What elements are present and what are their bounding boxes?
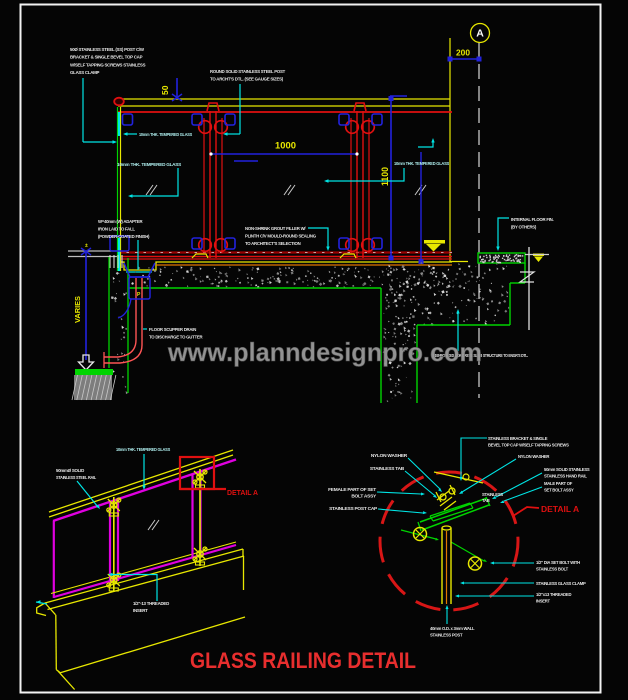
svg-text:TO ARCHITECT'S SELECTION: TO ARCHITECT'S SELECTION: [245, 241, 301, 246]
svg-text:GLASS RAILING DETAIL: GLASS RAILING DETAIL: [190, 648, 416, 673]
svg-text:MALE PART OF: MALE PART OF: [544, 481, 573, 486]
svg-text:STAINLESS BOLT: STAINLESS BOLT: [536, 567, 569, 572]
svg-text:STAINLESS BRACKET & SINGLE: STAINLESS BRACKET & SINGLE: [488, 436, 548, 441]
svg-text:VARIES: VARIES: [73, 296, 82, 323]
svg-text:1000: 1000: [275, 141, 296, 152]
svg-text:SET BOLT ASSY: SET BOLT ASSY: [544, 488, 574, 493]
svg-text:GLASS CLAMP: GLASS CLAMP: [70, 70, 100, 75]
svg-text:(POWDER-COATED FINISH): (POWDER-COATED FINISH): [98, 234, 150, 239]
svg-text:FLOOR SCUPPER DRAIN: FLOOR SCUPPER DRAIN: [149, 327, 196, 332]
svg-text:STAINLESS POST: STAINLESS POST: [430, 633, 463, 638]
svg-text:ROUND SOLID STAINLESS STEEL PO: ROUND SOLID STAINLESS STEEL POST: [210, 69, 286, 74]
svg-text:BEVEL TOP CAP W/SELF TAPPING S: BEVEL TOP CAP W/SELF TAPPING SCREWS: [488, 443, 569, 448]
svg-text:1/2" DIA SET BOLT WITH: 1/2" DIA SET BOLT WITH: [536, 560, 580, 565]
svg-text:1/2"-13 THREADED: 1/2"-13 THREADED: [133, 601, 169, 606]
svg-text:INTERNAL FLOOR FIN.: INTERNAL FLOOR FIN.: [511, 217, 553, 222]
svg-text:STAINLESS POST CAP: STAINLESS POST CAP: [329, 506, 378, 512]
svg-text:STAINLESS GLASS CLAMP: STAINLESS GLASS CLAMP: [536, 581, 586, 586]
svg-text:IRON LAID TO FALL: IRON LAID TO FALL: [98, 227, 135, 232]
svg-text:10mm THK. TEMPERED GLASS: 10mm THK. TEMPERED GLASS: [139, 132, 192, 137]
svg-text:10mm THK. TEMPERED GLASS: 10mm THK. TEMPERED GLASS: [116, 447, 170, 452]
svg-text:INSERT: INSERT: [536, 599, 551, 604]
svg-text:DETAIL A: DETAIL A: [227, 490, 258, 497]
svg-text:INSERT: INSERT: [133, 608, 148, 613]
svg-text:NYLON WASHER: NYLON WASHER: [371, 453, 408, 459]
svg-text:A: A: [476, 28, 484, 40]
svg-text:NYLON WASHER: NYLON WASHER: [518, 454, 549, 459]
svg-text:1100: 1100: [380, 167, 391, 186]
svg-text:50mm SOLID STAINLESS: 50mm SOLID STAINLESS: [544, 467, 590, 472]
svg-text:W=40mm (W) ADAPTER: W=40mm (W) ADAPTER: [98, 219, 144, 224]
svg-text:STAINLESS HAND RAIL: STAINLESS HAND RAIL: [544, 474, 587, 479]
svg-text:FEMALE PART OF SET: FEMALE PART OF SET: [328, 487, 376, 493]
svg-text:TO ARCHT'S DTL. (SEE GAUGE SIZ: TO ARCHT'S DTL. (SEE GAUGE SIZES): [210, 77, 284, 82]
svg-text:BRACKET & SINGLE BEVEL TOP CAP: BRACKET & SINGLE BEVEL TOP CAP: [70, 55, 143, 60]
svg-text:NON-SHRINK GROUT FILLER W/: NON-SHRINK GROUT FILLER W/: [245, 226, 306, 231]
svg-text:40mm O.D. x 3mm WALL: 40mm O.D. x 3mm WALL: [430, 626, 475, 631]
svg-text:DETAIL A: DETAIL A: [541, 504, 579, 514]
svg-text:200: 200: [456, 48, 470, 58]
svg-text:(BY OTHERS): (BY OTHERS): [511, 225, 537, 230]
svg-text:50: 50: [160, 85, 170, 95]
svg-text:STAINLESS STEEL RAIL: STAINLESS STEEL RAIL: [56, 475, 96, 480]
svg-text:50Ø STAINLESS STEEL (SS) POST: 50Ø STAINLESS STEEL (SS) POST C/W: [70, 47, 145, 52]
svg-text:50mmØ SOLID: 50mmØ SOLID: [56, 468, 84, 473]
svg-text:W/SELF TAPPING SCREWS STAINLES: W/SELF TAPPING SCREWS STAINLESS: [70, 62, 146, 67]
svg-text:10mm THK. TEMPERED GLASS: 10mm THK. TEMPERED GLASS: [394, 161, 449, 166]
svg-text:STAINLESS: STAINLESS: [482, 492, 503, 497]
svg-text:1/2"x13 THREADED: 1/2"x13 THREADED: [536, 592, 571, 597]
svg-text:PLINTH C/V MOULD-ROUND SEALING: PLINTH C/V MOULD-ROUND SEALING: [245, 234, 317, 239]
svg-text:STAINLESS TAB: STAINLESS TAB: [370, 466, 405, 472]
svg-text:10mm THK. TEMPERED GLASS: 10mm THK. TEMPERED GLASS: [117, 162, 181, 167]
svg-text:BOLT ASSY: BOLT ASSY: [351, 494, 377, 500]
svg-text:www.planndesignpro.com: www.planndesignpro.com: [167, 337, 482, 367]
svg-text:TAB: TAB: [482, 498, 490, 503]
